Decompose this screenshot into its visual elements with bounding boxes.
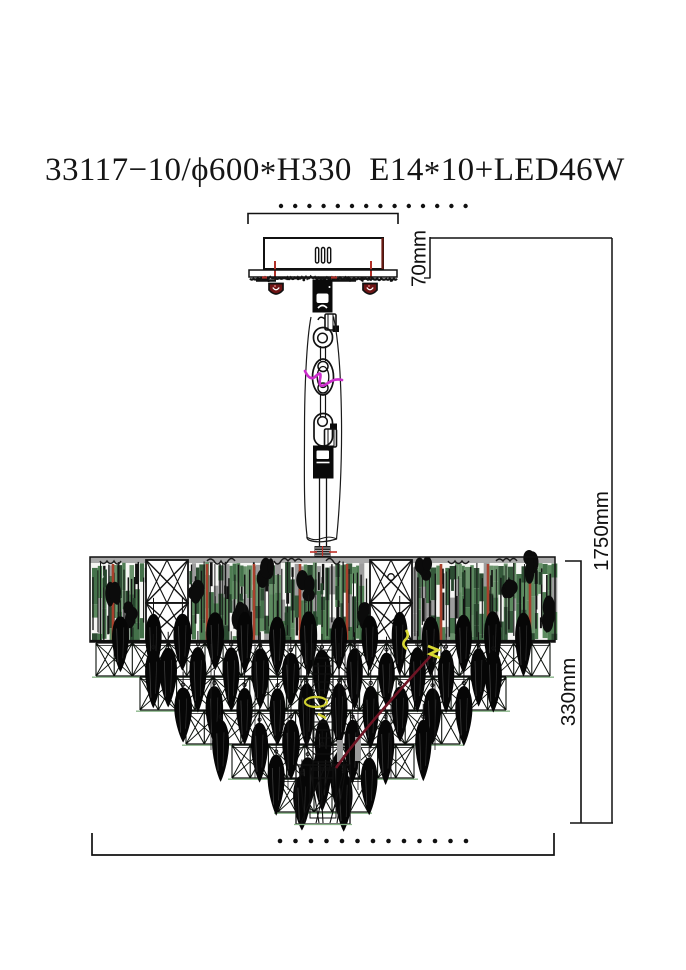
svg-text:33117−10/ϕ600*H330 E14*10+LED: 33117−10/ϕ600*H330 E14*10+LED46W xyxy=(45,152,625,192)
svg-text:1750mm: 1750mm xyxy=(590,491,613,571)
svg-text:70mm: 70mm xyxy=(408,230,431,287)
svg-text:330mm: 330mm xyxy=(557,658,580,726)
